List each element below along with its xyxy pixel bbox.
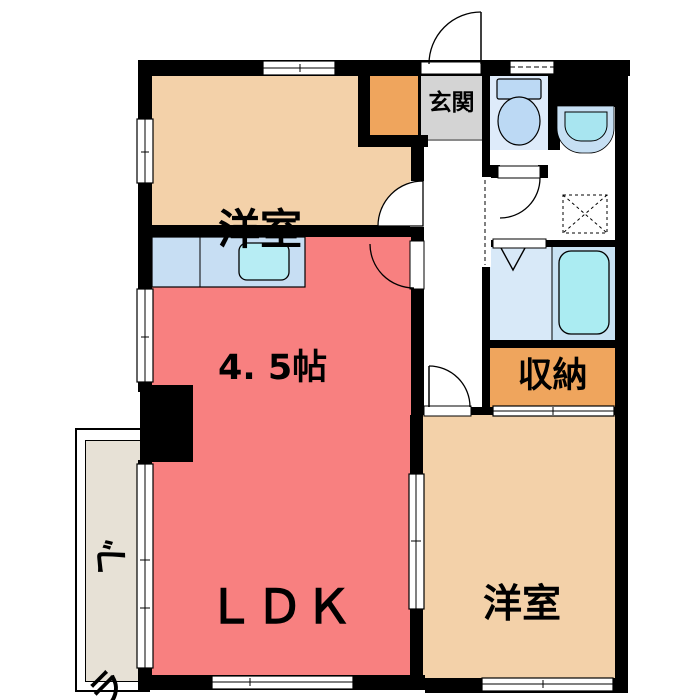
bathtub-icon xyxy=(552,247,609,340)
bedroom-west-door-icon xyxy=(378,181,425,227)
ldk-label: ＬＤＫ 12. 8帖 xyxy=(207,477,371,700)
sliding-door-icon-storage xyxy=(493,406,614,416)
floor-plan: 洋室 4. 5帖 玄関 収納 ＬＤＫ 12. 8帖 洋室 6帖 ベ ラ ン ダ xyxy=(0,0,700,700)
washroom-opening-icon xyxy=(481,177,491,267)
sliding-door-icon-ldk-bedroom-east xyxy=(409,474,424,609)
window-icon-bedroom-west-top xyxy=(263,61,335,75)
bedroom-west-name: 洋室 xyxy=(218,206,327,253)
toilet-door-icon xyxy=(498,166,540,218)
storage-label: 収納 xyxy=(490,357,615,396)
ldk-door-icon xyxy=(370,241,424,289)
entrance-label: 玄関 xyxy=(421,91,482,117)
ldk-name: ＬＤＫ xyxy=(207,582,371,635)
bedroom-east-label: 洋室 6帖 xyxy=(483,496,561,700)
bedroom-west-label: 洋室 4. 5帖 xyxy=(218,112,327,482)
bedroom-east-door-icon xyxy=(424,366,471,416)
toilet-icon xyxy=(497,79,541,145)
bedroom-west-size: 4. 5帖 xyxy=(218,349,327,388)
washing-machine-pan-icon xyxy=(563,195,607,233)
window-icon-left-ldk xyxy=(137,289,153,382)
bathroom-door-icon xyxy=(493,239,546,270)
window-icon-toilet-top xyxy=(510,61,554,74)
entrance-door-icon xyxy=(421,12,481,74)
veranda-label: ベ ラ ン ダ xyxy=(89,460,137,700)
window-icon-left-upper xyxy=(137,119,153,183)
bedroom-east-name: 洋室 xyxy=(483,583,561,627)
washbasin-icon xyxy=(557,106,614,153)
